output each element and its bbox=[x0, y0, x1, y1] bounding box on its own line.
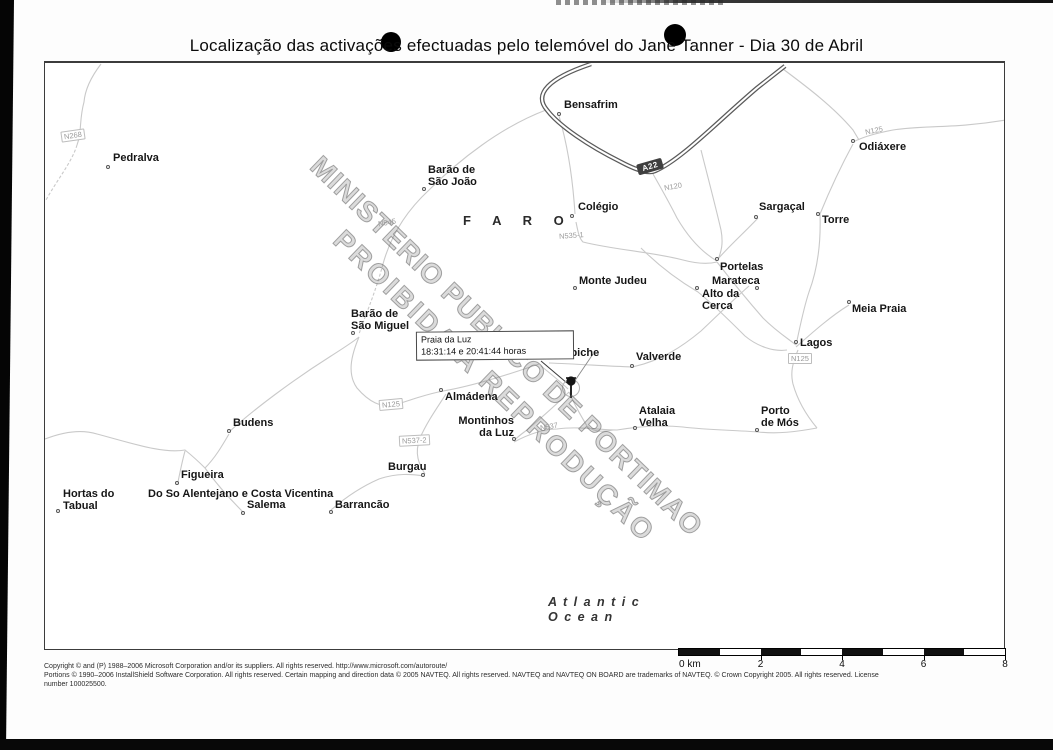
map-scale-bar: 0 km2468 bbox=[678, 648, 1006, 674]
place-label-line: Barão de bbox=[428, 165, 477, 177]
place-label-line: Portelas bbox=[720, 262, 763, 274]
scale-bar-segment bbox=[964, 649, 1005, 655]
page-title: Localização das activações efectuadas pe… bbox=[0, 36, 1053, 56]
place-label: Monte Judeu bbox=[579, 276, 647, 288]
place-label-line: Odiáxere bbox=[859, 142, 906, 154]
place-label-line: Salema bbox=[247, 500, 286, 512]
place-label-line: Cerca bbox=[702, 301, 739, 313]
place-label-line: Velha bbox=[639, 418, 675, 430]
place-label: Salema bbox=[247, 500, 286, 512]
scale-bar-tick-label: 6 bbox=[921, 659, 927, 670]
place-label: Alto daCerca bbox=[702, 289, 739, 312]
place-label: Valverde bbox=[636, 352, 681, 364]
place-label-line: Porto bbox=[761, 406, 799, 418]
place-marker bbox=[816, 212, 820, 216]
scale-bar-segment bbox=[924, 649, 965, 655]
place-marker bbox=[754, 215, 758, 219]
place-label: Colégio bbox=[578, 202, 618, 214]
scale-bar-segment bbox=[720, 649, 761, 655]
place-label-line: Tabual bbox=[63, 501, 114, 513]
place-label: Barão deSão Miguel bbox=[351, 309, 409, 332]
place-label-line: Atalaia bbox=[639, 406, 675, 418]
place-marker bbox=[439, 388, 443, 392]
place-label: Bensafrim bbox=[564, 100, 618, 112]
place-label: Portode Mós bbox=[761, 406, 799, 429]
scale-bar-tick-label: 4 bbox=[839, 659, 845, 670]
place-label-line: Sargaçal bbox=[759, 202, 805, 214]
cut-off-text-fragment bbox=[556, 0, 726, 5]
place-label-line: Alto da bbox=[702, 289, 739, 301]
scale-bar-segment bbox=[801, 649, 842, 655]
place-label-line: Marateca bbox=[712, 276, 760, 288]
place-marker bbox=[570, 214, 574, 218]
scale-bar-segments bbox=[678, 648, 1006, 656]
map-canvas: MINISTERIO PUBLICO DE PORTIMAO PROIBIDA … bbox=[44, 61, 1005, 650]
road-number-label: N125 bbox=[864, 124, 883, 137]
place-marker bbox=[56, 509, 60, 513]
place-marker bbox=[106, 165, 110, 169]
place-label-line: Burgau bbox=[388, 462, 427, 474]
scale-bar-segment bbox=[842, 649, 883, 655]
place-marker bbox=[695, 286, 699, 290]
place-label: Barão deSão João bbox=[428, 165, 477, 188]
place-label-line: Almádena bbox=[445, 392, 498, 404]
place-label: Figueira bbox=[181, 470, 224, 482]
place-marker bbox=[422, 187, 426, 191]
place-label-line: São Miguel bbox=[351, 321, 409, 333]
place-marker bbox=[715, 257, 719, 261]
place-marker bbox=[630, 364, 634, 368]
callout-times: 18:31:14 e 20:41:44 horas bbox=[421, 345, 569, 358]
place-marker bbox=[351, 331, 355, 335]
place-label: Montinhosda Luz bbox=[458, 416, 514, 439]
place-label-line: Pedralva bbox=[113, 153, 159, 165]
place-label-line: Barrancão bbox=[335, 500, 389, 512]
place-label: Hortas doTabual bbox=[63, 489, 114, 512]
praia-da-luz-callout: Praia da Luz 18:31:14 e 20:41:44 horas bbox=[416, 330, 574, 360]
place-marker bbox=[512, 437, 516, 441]
place-label: Lagos bbox=[800, 338, 832, 350]
road-number-label: N535-1 bbox=[559, 230, 584, 241]
scanned-map-page: Localização das activações efectuadas pe… bbox=[0, 0, 1053, 750]
place-marker bbox=[573, 286, 577, 290]
road-number-label: N120 bbox=[663, 181, 682, 193]
place-label: Odiáxere bbox=[859, 142, 906, 154]
road-number-label: N537 bbox=[539, 421, 558, 433]
place-label: Budens bbox=[233, 418, 273, 430]
place-label-line: Figueira bbox=[181, 470, 224, 482]
place-marker bbox=[227, 429, 231, 433]
place-label: Meia Praia bbox=[852, 304, 906, 316]
scale-bar-tick-label: 2 bbox=[758, 659, 764, 670]
road-number-label: N268 bbox=[60, 128, 85, 142]
copyright-line3: number 100025500. bbox=[44, 681, 956, 690]
scale-bar-segment bbox=[679, 649, 720, 655]
place-marker bbox=[633, 426, 637, 430]
place-marker bbox=[851, 139, 855, 143]
place-label-line: Hortas do bbox=[63, 489, 114, 501]
road-number-label: N545 bbox=[377, 217, 396, 229]
place-label: Almádena bbox=[445, 392, 498, 404]
road-number-label: N537-2 bbox=[399, 434, 430, 447]
scale-bar-tick-label: 8 bbox=[1002, 659, 1008, 670]
place-label: Pedralva bbox=[113, 153, 159, 165]
scale-bar-tick-label: 0 km bbox=[679, 659, 701, 670]
place-label: Torre bbox=[822, 215, 849, 227]
place-marker bbox=[421, 473, 425, 477]
place-label-line: Barão de bbox=[351, 309, 409, 321]
place-label-line: Colégio bbox=[578, 202, 618, 214]
place-marker bbox=[557, 112, 561, 116]
road-number-label: N125 bbox=[379, 398, 404, 411]
place-label-line: Do So Alentejano e Costa Vicentina bbox=[148, 489, 333, 501]
scale-bar-segment bbox=[883, 649, 924, 655]
scale-bar-segment bbox=[761, 649, 802, 655]
place-marker bbox=[241, 511, 245, 515]
place-label-line: Lagos bbox=[800, 338, 832, 350]
place-label-line: Monte Judeu bbox=[579, 276, 647, 288]
place-marker bbox=[755, 428, 759, 432]
scan-border-bottom bbox=[0, 739, 1053, 750]
place-label: Barrancão bbox=[335, 500, 389, 512]
place-label-line: Torre bbox=[822, 215, 849, 227]
place-label-line: da Luz bbox=[458, 428, 514, 440]
place-marker bbox=[794, 340, 798, 344]
place-marker bbox=[847, 300, 851, 304]
place-label: Sargaçal bbox=[759, 202, 805, 214]
place-label: AtalaiaVelha bbox=[639, 406, 675, 429]
place-marker bbox=[755, 286, 759, 290]
place-label: Do So Alentejano e Costa Vicentina bbox=[148, 489, 333, 501]
place-label-line: São João bbox=[428, 177, 477, 189]
place-label-line: Montinhos bbox=[458, 416, 514, 428]
place-label-line: Bensafrim bbox=[564, 100, 618, 112]
place-label-line: Valverde bbox=[636, 352, 681, 364]
place-label: Marateca bbox=[712, 276, 760, 288]
place-label-line: Budens bbox=[233, 418, 273, 430]
place-marker bbox=[329, 510, 333, 514]
road-number-label: N125 bbox=[788, 353, 812, 364]
place-label: Burgau bbox=[388, 462, 427, 474]
place-label-line: Meia Praia bbox=[852, 304, 906, 316]
place-marker bbox=[175, 481, 179, 485]
place-label: Portelas bbox=[720, 262, 763, 274]
scan-border-left bbox=[0, 0, 14, 750]
place-label-line: de Mós bbox=[761, 418, 799, 430]
